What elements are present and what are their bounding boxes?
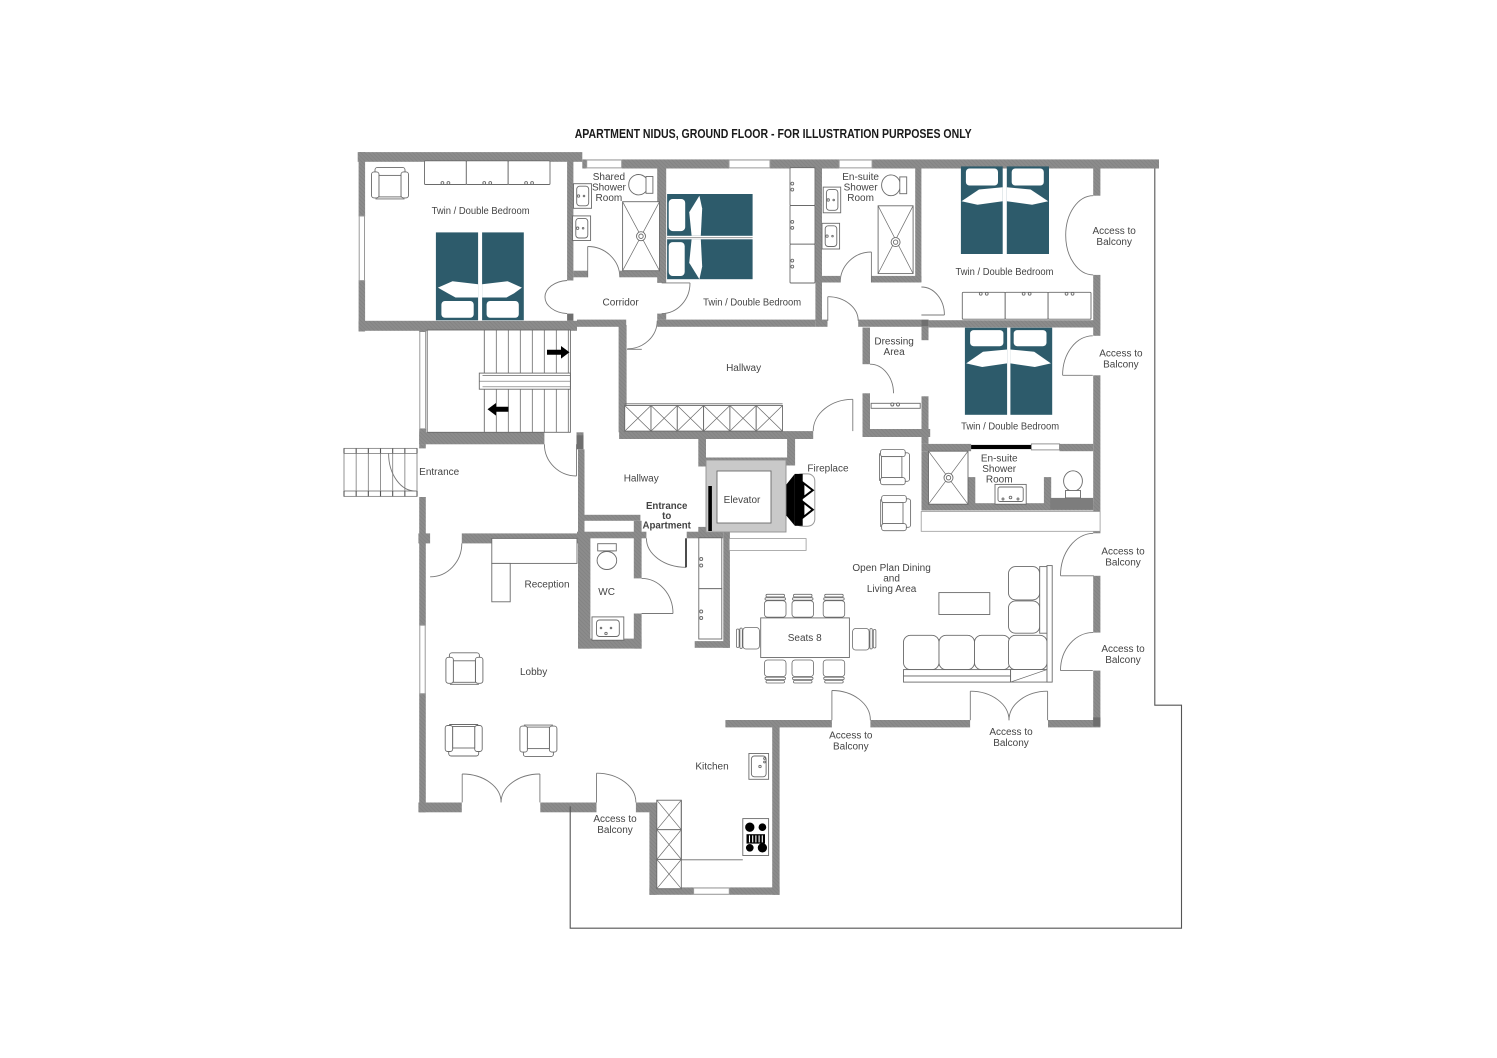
svg-text:and: and [883, 574, 900, 585]
svg-text:Reception: Reception [524, 579, 569, 590]
svg-text:En-suite: En-suite [981, 453, 1018, 464]
svg-text:Entrance: Entrance [419, 467, 459, 478]
svg-text:Access to: Access to [1101, 644, 1145, 655]
svg-text:Balcony: Balcony [1096, 237, 1132, 248]
svg-text:Hallway: Hallway [726, 363, 761, 374]
svg-text:Kitchen: Kitchen [695, 762, 728, 773]
svg-text:Seats 8: Seats 8 [788, 633, 822, 644]
svg-text:Living Area: Living Area [867, 584, 917, 595]
svg-text:Lobby: Lobby [520, 667, 547, 678]
svg-text:Room: Room [596, 193, 623, 204]
svg-text:Balcony: Balcony [1105, 557, 1141, 568]
svg-text:Twin / Double Bedroom: Twin / Double Bedroom [703, 298, 801, 309]
svg-text:Corridor: Corridor [603, 298, 640, 309]
svg-text:Access to: Access to [989, 727, 1033, 738]
svg-text:Access to: Access to [1099, 348, 1143, 359]
svg-text:Access to: Access to [1093, 226, 1137, 237]
svg-text:Apartment: Apartment [642, 520, 691, 531]
svg-text:Twin / Double Bedroom: Twin / Double Bedroom [956, 267, 1054, 278]
svg-text:Access to: Access to [829, 731, 873, 742]
svg-text:APARTMENT NIDUS, GROUND FLOOR: APARTMENT NIDUS, GROUND FLOOR - FOR ILLU… [575, 126, 972, 141]
svg-text:Room: Room [986, 474, 1013, 485]
svg-text:Shower: Shower [844, 182, 879, 193]
svg-text:Elevator: Elevator [724, 495, 761, 506]
svg-text:Balcony: Balcony [833, 742, 869, 753]
svg-text:Open Plan Dining: Open Plan Dining [852, 563, 930, 574]
svg-text:Shower: Shower [982, 464, 1017, 475]
svg-text:Access to: Access to [1101, 546, 1145, 557]
svg-text:En-suite: En-suite [842, 172, 879, 183]
svg-text:Shower: Shower [592, 182, 627, 193]
svg-text:Shared: Shared [593, 172, 625, 183]
svg-text:Room: Room [847, 193, 874, 204]
svg-text:Balcony: Balcony [993, 738, 1029, 749]
svg-text:Twin / Double Bedroom: Twin / Double Bedroom [961, 421, 1059, 432]
svg-text:Dressing: Dressing [874, 336, 913, 347]
svg-text:Area: Area [884, 347, 906, 358]
svg-text:Hallway: Hallway [624, 473, 659, 484]
svg-text:Access to: Access to [593, 814, 637, 825]
svg-text:Balcony: Balcony [1103, 359, 1139, 370]
svg-text:WC: WC [598, 587, 615, 598]
svg-text:Fireplace: Fireplace [807, 464, 849, 475]
svg-text:Balcony: Balcony [597, 825, 633, 836]
svg-text:Twin / Double Bedroom: Twin / Double Bedroom [432, 206, 530, 217]
svg-text:Balcony: Balcony [1105, 655, 1141, 666]
